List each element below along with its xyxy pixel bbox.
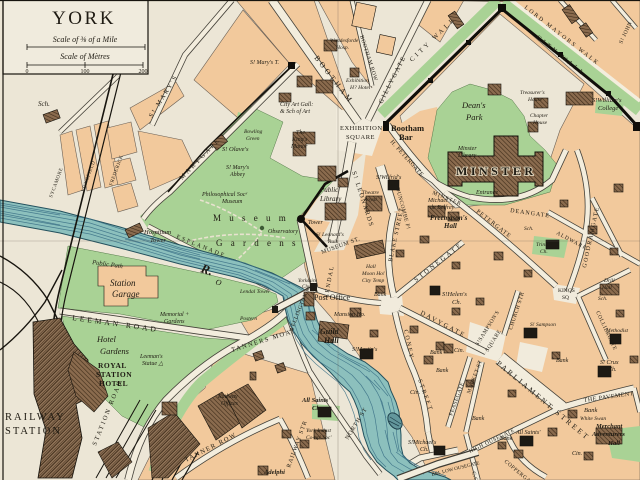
svg-text:Ch.: Ch. xyxy=(612,335,620,341)
svg-text:Post Office: Post Office xyxy=(314,293,351,302)
svg-text:Royal: Royal xyxy=(363,197,377,203)
svg-text:Theatre: Theatre xyxy=(362,190,379,196)
svg-text:Guild: Guild xyxy=(320,327,340,336)
svg-text:S!Helen's: S!Helen's xyxy=(442,291,467,298)
svg-text:Merchant: Merchant xyxy=(595,423,623,430)
svg-text:Entrance: Entrance xyxy=(475,190,498,196)
svg-text:Bank: Bank xyxy=(374,292,387,298)
svg-text:Hospitium: Hospitium xyxy=(143,229,171,236)
svg-text:Trinity: Trinity xyxy=(536,242,551,248)
svg-text:de Belfrey: de Belfrey xyxy=(430,204,455,211)
svg-text:Adventurers: Adventurers xyxy=(591,431,625,438)
svg-text:Abbey: Abbey xyxy=(229,172,245,178)
svg-text:S!Martin's: S!Martin's xyxy=(352,347,378,353)
svg-text:Scale of Mètres: Scale of Mètres xyxy=(60,52,109,61)
svg-text:S! Mary's T.: S! Mary's T. xyxy=(250,60,279,66)
svg-text:Ch.: Ch. xyxy=(524,437,533,443)
svg-text:Scale of ⅜ of a Mile: Scale of ⅜ of a Mile xyxy=(53,35,118,44)
svg-text:Lendal Tower: Lendal Tower xyxy=(239,289,271,295)
svg-text:Exhibition: Exhibition xyxy=(345,78,369,84)
svg-text:Club: Club xyxy=(302,285,312,290)
svg-text:S! Olave's: S! Olave's xyxy=(222,146,249,153)
svg-text:Bar: Bar xyxy=(399,132,413,142)
svg-text:Ch.: Ch. xyxy=(362,354,371,360)
svg-text:200: 200 xyxy=(139,69,148,75)
svg-text:Bank: Bank xyxy=(430,350,443,356)
svg-text:Yorkshire: Yorkshire xyxy=(298,279,318,284)
svg-text:Hall: Hall xyxy=(601,285,612,291)
svg-text:Adelphi: Adelphi xyxy=(263,469,285,476)
svg-text:Ch.: Ch. xyxy=(540,249,548,255)
svg-text:Bank: Bank xyxy=(556,358,569,364)
svg-text:Bank: Bank xyxy=(472,416,485,422)
svg-text:Methodist: Methodist xyxy=(605,328,628,334)
svg-text:SQ: SQ xyxy=(562,295,569,301)
svg-text:S!William's: S!William's xyxy=(592,97,622,104)
svg-text:SQUARE: SQUARE xyxy=(346,134,375,141)
svg-text:0: 0 xyxy=(26,69,29,75)
svg-text:Green: Green xyxy=(246,136,260,142)
svg-text:Cin.: Cin. xyxy=(572,451,582,457)
svg-text:Tower: Tower xyxy=(308,220,323,226)
svg-text:York Indust: York Indust xyxy=(306,428,331,434)
svg-text:City Temp: City Temp xyxy=(362,278,385,284)
svg-text:S!Michael's: S!Michael's xyxy=(408,440,437,446)
svg-text:S! Sampson: S! Sampson xyxy=(530,322,556,328)
svg-text:Hosp.: Hosp. xyxy=(335,45,349,51)
svg-text:Co-op' Soc': Co-op' Soc' xyxy=(306,435,332,441)
svg-text:STATION: STATION xyxy=(96,370,132,379)
svg-text:Hall: Hall xyxy=(365,264,376,270)
svg-text:Gardens: Gardens xyxy=(100,346,130,356)
svg-text:Treasurer's: Treasurer's xyxy=(520,90,545,96)
svg-text:Sch.: Sch. xyxy=(598,296,607,302)
svg-text:Ch.: Ch. xyxy=(608,367,617,373)
svg-text:Ch.: Ch. xyxy=(312,405,322,412)
svg-text:Michael: Michael xyxy=(427,198,448,204)
svg-text:Museum: Museum xyxy=(221,199,243,205)
svg-text:EXHIBITION: EXHIBITION xyxy=(340,125,383,132)
svg-text:YORK: YORK xyxy=(52,8,116,29)
svg-text:Ch.: Ch. xyxy=(388,182,397,188)
svg-text:Tower: Tower xyxy=(150,237,166,244)
svg-text:Gardens: Gardens xyxy=(164,319,185,325)
svg-text:KINGS: KINGS xyxy=(558,288,575,294)
svg-text:Freemason's: Freemason's xyxy=(430,214,468,222)
svg-text:Hall: Hall xyxy=(443,222,457,230)
svg-text:H? Hotel: H? Hotel xyxy=(349,85,371,91)
svg-text:G a r d e n s: G a r d e n s xyxy=(216,238,299,248)
svg-text:Hall: Hall xyxy=(323,336,339,345)
svg-text:Park: Park xyxy=(465,112,483,122)
svg-text:Bank: Bank xyxy=(500,436,513,442)
svg-text:Hall: Hall xyxy=(607,440,620,447)
svg-text:Offices: Offices xyxy=(221,400,239,407)
svg-text:Library: Library xyxy=(457,153,477,159)
svg-text:King's: King's xyxy=(291,137,308,143)
svg-text:Drill: Drill xyxy=(603,278,615,284)
svg-text:Leeman's: Leeman's xyxy=(139,354,163,360)
svg-text:STATION: STATION xyxy=(5,426,62,437)
svg-text:Moon Ho!: Moon Ho! xyxy=(361,271,385,277)
svg-text:Dean's: Dean's xyxy=(461,100,486,110)
svg-text:The: The xyxy=(296,130,305,136)
svg-text:Ch.: Ch. xyxy=(420,447,429,453)
svg-text:Station: Station xyxy=(110,278,136,288)
svg-text:Cin.: Cin. xyxy=(454,348,464,354)
svg-text:Garage: Garage xyxy=(112,289,140,299)
svg-text:S! Mary's: S! Mary's xyxy=(226,165,250,171)
svg-text:S! Leonard's: S! Leonard's xyxy=(316,232,344,238)
svg-text:All Saints': All Saints' xyxy=(515,430,541,436)
svg-text:& Sch of Art: & Sch of Art xyxy=(280,108,310,115)
svg-text:Memorial +: Memorial + xyxy=(159,312,189,318)
svg-text:White Swan: White Swan xyxy=(580,416,606,422)
svg-text:100: 100 xyxy=(81,69,90,75)
svg-text:RAILWAY: RAILWAY xyxy=(5,412,66,423)
svg-text:College: College xyxy=(598,105,618,112)
svg-text:Public: Public xyxy=(319,186,339,194)
svg-text:Wandesforde: Wandesforde xyxy=(330,37,359,44)
svg-text:Chapter: Chapter xyxy=(530,113,549,119)
svg-text:ROYAL: ROYAL xyxy=(98,361,127,370)
svg-text:City Art Gall:: City Art Gall: xyxy=(280,102,313,108)
svg-text:S! Crux: S! Crux xyxy=(600,360,619,366)
svg-text:S!Wilfrid's: S!Wilfrid's xyxy=(376,174,402,181)
svg-text:MINSTER: MINSTER xyxy=(456,164,537,178)
svg-text:Statue △: Statue △ xyxy=(142,361,163,367)
svg-text:Philosophical Socʸ: Philosophical Socʸ xyxy=(201,192,247,198)
svg-text:Library: Library xyxy=(319,195,342,203)
svg-text:Cin.: Cin. xyxy=(410,390,420,396)
svg-text:House: House xyxy=(532,120,548,126)
svg-text:Bank: Bank xyxy=(584,407,597,414)
svg-text:Sch.: Sch. xyxy=(38,100,50,108)
svg-text:Ch.: Ch. xyxy=(452,299,462,306)
svg-text:Minster: Minster xyxy=(457,146,477,152)
svg-text:Bank: Bank xyxy=(436,368,449,374)
svg-text:Sch.: Sch. xyxy=(524,226,533,232)
svg-text:Railway: Railway xyxy=(217,394,238,400)
svg-text:Manor: Manor xyxy=(290,144,308,150)
svg-text:Postern: Postern xyxy=(239,316,257,322)
svg-text:All Saints': All Saints' xyxy=(301,397,330,404)
svg-text:Hotel: Hotel xyxy=(96,334,117,344)
svg-text:Bowling: Bowling xyxy=(244,129,263,135)
svg-text:Observatory: Observatory xyxy=(268,229,298,235)
svg-text:House: House xyxy=(527,97,543,103)
svg-text:M u s e u m: M u s e u m xyxy=(213,213,289,223)
